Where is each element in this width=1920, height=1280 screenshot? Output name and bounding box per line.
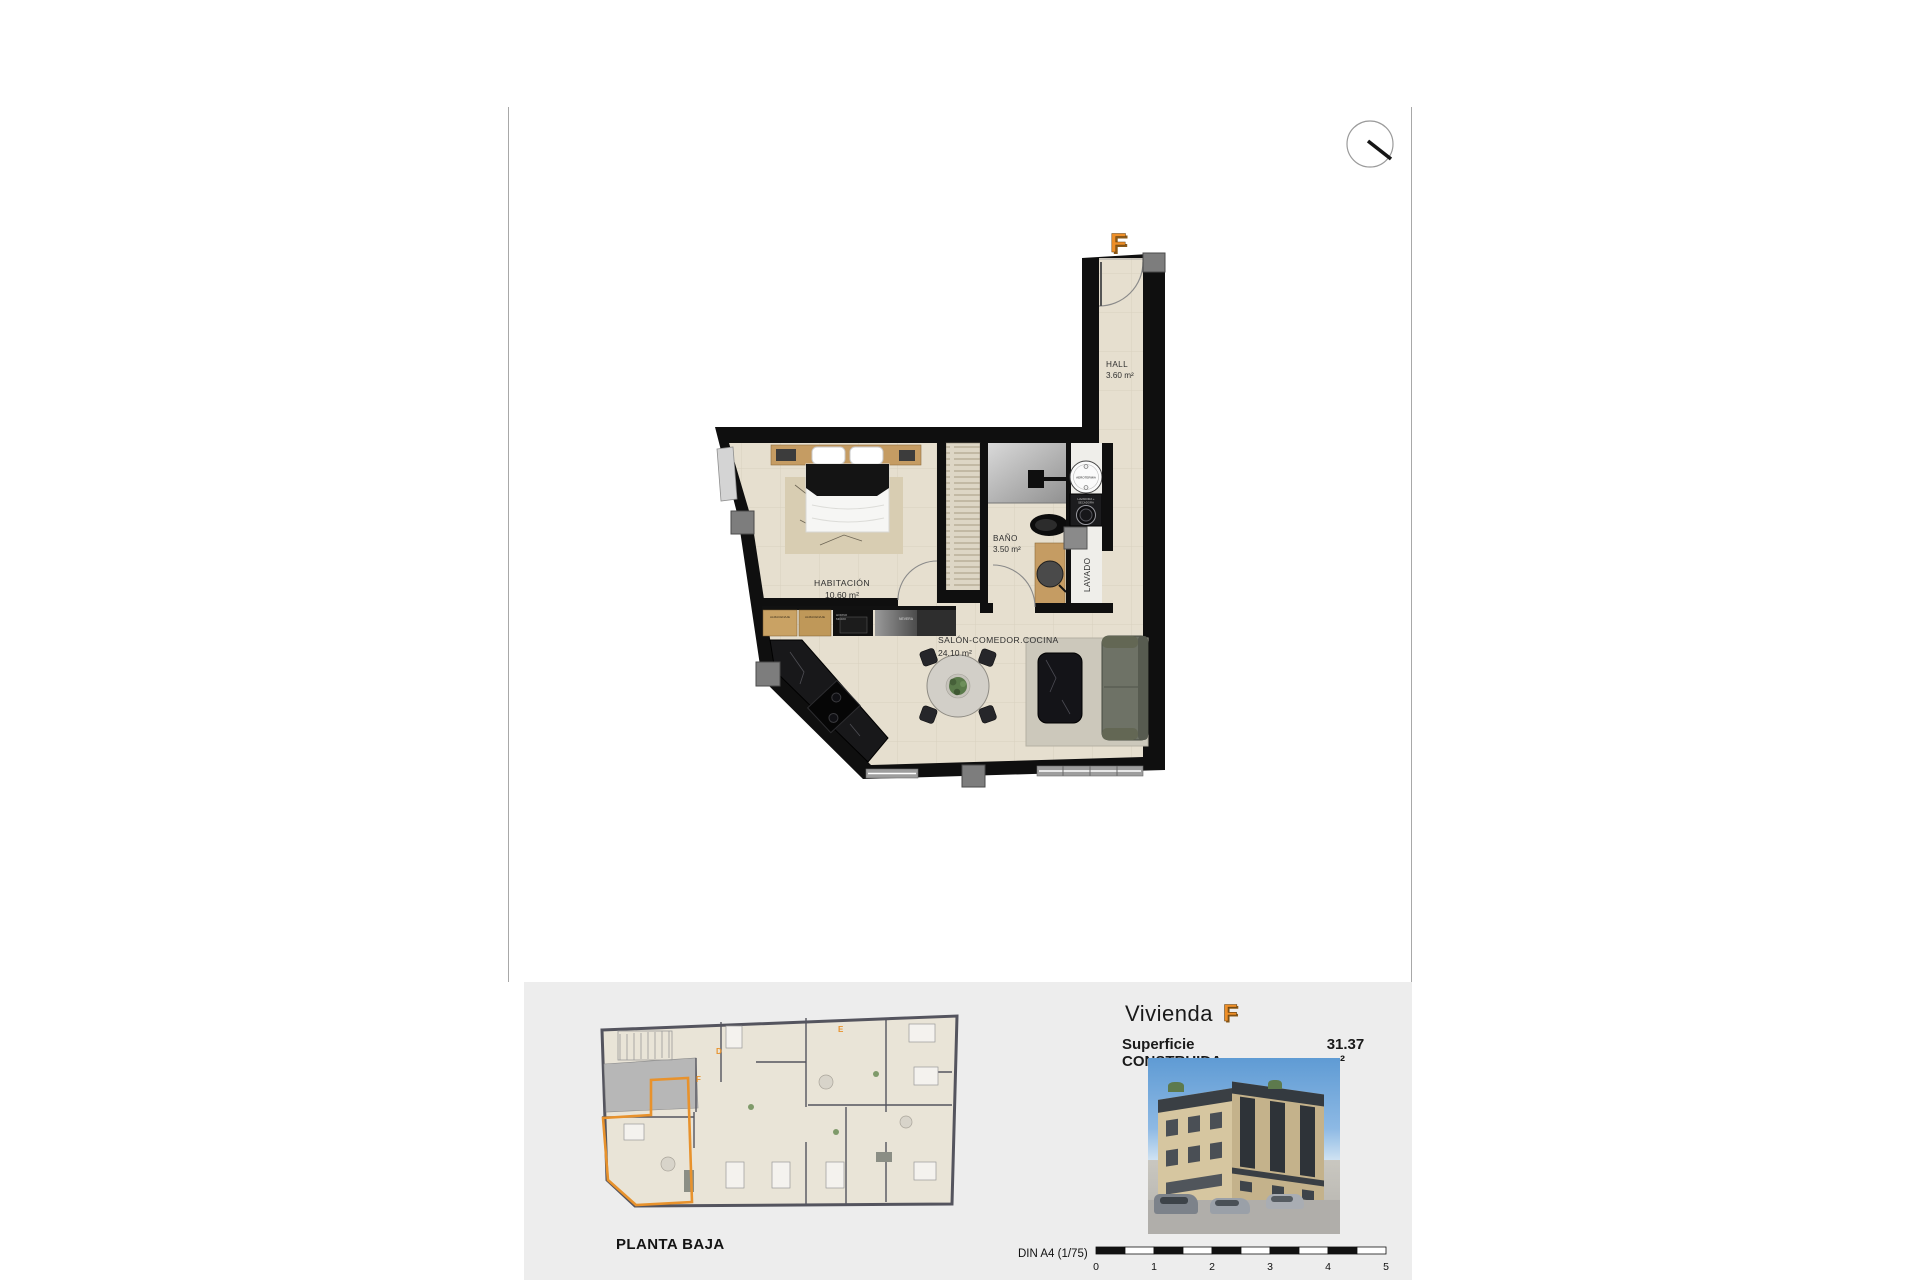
basin	[1037, 561, 1063, 587]
cabinet-2-label: ALMACENAJE	[805, 615, 825, 619]
scale-segments	[1096, 1247, 1386, 1254]
roof-plant	[1268, 1080, 1282, 1089]
unit-letter-d: D	[716, 1047, 722, 1056]
sofa	[1102, 636, 1148, 740]
shower-column	[1028, 470, 1044, 488]
shower-bar	[1044, 477, 1068, 481]
compass-icon	[1344, 116, 1398, 172]
laundry-wall-right	[1102, 443, 1113, 551]
building-photo	[1148, 1058, 1340, 1234]
overview-plan: D E F	[576, 1012, 968, 1216]
bedroom-window	[717, 447, 737, 501]
pillar-bottom	[962, 765, 985, 787]
scale-ticks: 0 1 2 3 4 5	[1093, 1261, 1389, 1273]
bath-wall-b	[1035, 603, 1113, 613]
wardrobe-wall-right	[980, 443, 988, 613]
unit-title-letter: F	[1223, 1000, 1238, 1028]
floorplan-sheet: AEROTERMIA LAVADORA + SECADORA LAVADO AL…	[0, 0, 1920, 1280]
bed-blanket	[806, 464, 889, 496]
cabinet-1	[763, 610, 797, 636]
window-bottom-left	[866, 769, 918, 778]
photo-car	[1210, 1198, 1250, 1214]
fridge-label: NEVERA	[899, 617, 914, 621]
pillow	[812, 447, 845, 464]
unit-marker: F	[1110, 228, 1127, 258]
scale-label: DIN A4 (1/75)	[1018, 1248, 1088, 1260]
floor-plan: AEROTERMIA LAVADORA + SECADORA LAVADO AL…	[700, 215, 1186, 800]
photo-car	[1154, 1194, 1198, 1214]
roof-plant	[1168, 1082, 1184, 1092]
photo-facade-right	[1232, 1082, 1324, 1213]
toilet-seat	[1035, 519, 1057, 531]
washer-drum-inner	[1080, 509, 1092, 521]
living-area: 24.10 m²	[938, 648, 972, 658]
unit-title-prefix: Vivienda	[1125, 1001, 1213, 1027]
svg-text:4: 4	[1325, 1261, 1331, 1273]
scale-bar: DIN A4 (1/75) 0 1 2 3 4 5	[1016, 1240, 1398, 1278]
bath-wall-a	[988, 603, 993, 613]
overview-caption: PLANTA BAJA	[616, 1236, 725, 1253]
svg-text:5: 5	[1383, 1261, 1389, 1273]
svg-text:2: 2	[1209, 1261, 1215, 1273]
aerotermia-screw	[1084, 486, 1088, 490]
pillar-left-upper	[731, 511, 754, 534]
coffee-table	[1038, 653, 1082, 723]
wardrobe-wall-left	[937, 443, 946, 593]
page-border-left	[508, 107, 509, 982]
pillar-laundry	[1064, 527, 1087, 549]
washer-label-2: SECADORA	[1078, 501, 1094, 505]
pillar-left-lower	[756, 662, 780, 686]
aerotermia-label: AEROTERMIA	[1076, 476, 1096, 480]
bedroom-label: HABITACIÓN	[814, 578, 870, 588]
aerotermia-screw	[1084, 465, 1088, 469]
kitchen-counter-edge	[762, 606, 956, 610]
hall-label: HALL	[1106, 360, 1128, 369]
hall-area: 3.60 m²	[1106, 371, 1134, 380]
svg-text:1: 1	[1151, 1261, 1157, 1273]
bathroom-area: 3.50 m²	[993, 545, 1021, 554]
svg-text:3: 3	[1267, 1261, 1273, 1273]
fridge-dark	[917, 610, 956, 636]
oven-label-2: MICRO	[836, 617, 847, 621]
nightstand-right	[899, 450, 915, 461]
pillow	[850, 447, 883, 464]
fridge-front	[875, 610, 917, 636]
pillar-entrance	[1143, 253, 1165, 272]
svg-text:0: 0	[1093, 1261, 1099, 1273]
window-bottom-right	[1037, 766, 1143, 776]
wardrobe-wall-bottom	[937, 590, 988, 603]
nightstand-left	[776, 449, 796, 461]
cabinet-2	[799, 610, 831, 636]
photo-car	[1266, 1194, 1304, 1209]
bedroom-area: 10.60 m²	[825, 590, 859, 600]
laundry-label: LAVADO	[1083, 558, 1092, 592]
living-label: SALÓN-COMEDOR.COCINA	[938, 635, 1059, 645]
wardrobe	[946, 443, 980, 595]
unit-letter-e: E	[838, 1025, 844, 1034]
unit-letter-f: F	[696, 1075, 701, 1084]
cabinet-1-label: ALMACENAJE	[770, 615, 790, 619]
bathroom-label: BAÑO	[993, 533, 1018, 543]
unit-title: Vivienda F	[1125, 1000, 1238, 1028]
